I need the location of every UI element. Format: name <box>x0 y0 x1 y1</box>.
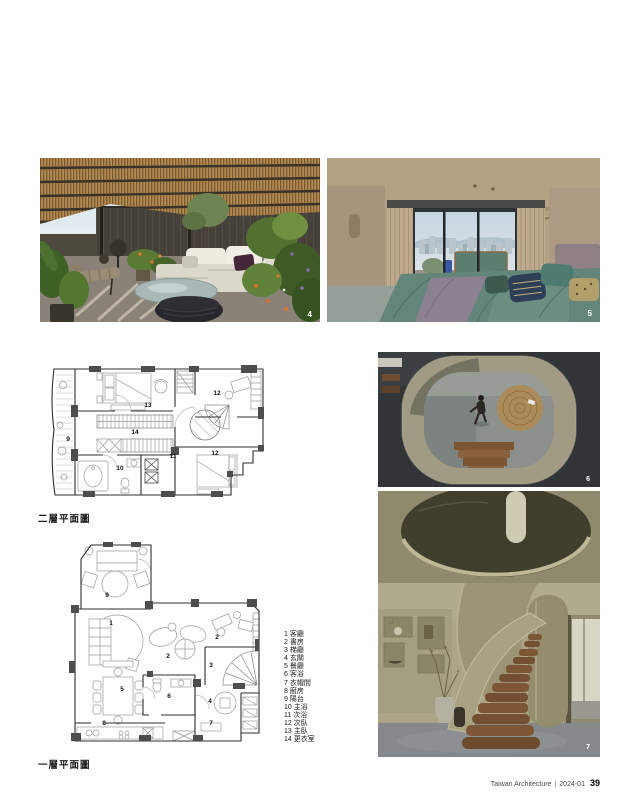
balcony-deck <box>56 375 73 489</box>
floor-plan-1f: 9 1 2 2 3 5 6 4 8 7 <box>45 535 270 755</box>
page-footer: Taiwan Architecture|2024-0139 <box>491 778 600 788</box>
svg-text:9: 9 <box>105 592 109 599</box>
wall-niche <box>349 214 360 238</box>
legend-item: 9 陽台 <box>284 696 315 704</box>
legend-item: 11 次浴 <box>284 712 315 720</box>
svg-text:10: 10 <box>116 465 124 472</box>
magazine-page: 4 <box>0 0 638 808</box>
photo-void: 6 <box>378 352 600 487</box>
balcony-shrub <box>422 258 444 274</box>
svg-text:11: 11 <box>170 453 177 460</box>
window-header <box>387 200 545 209</box>
photo-stair-hall: 7 <box>378 491 600 757</box>
upper-slab-and-void <box>378 491 600 583</box>
svg-text:8: 8 <box>102 720 106 727</box>
floor-plan-2f: 13 12 14 9 10 11 12 <box>45 355 267 505</box>
plan-2f-caption: 二層平面圖 <box>38 511 91 525</box>
room-legend: 1 客廳 2 書房 3 梯廳 4 玄關 5 餐廳 6 客浴 7 衣帽間 8 廚房… <box>284 631 315 744</box>
photo-number: 6 <box>586 476 590 483</box>
legend-item: 8 廚房 <box>284 688 315 696</box>
journal-name: Taiwan Architecture <box>491 781 552 788</box>
svg-text:12: 12 <box>211 450 219 457</box>
legend-item: 6 客浴 <box>284 671 315 679</box>
svg-text:2: 2 <box>166 653 170 660</box>
photo-terrace: 4 <box>40 158 320 322</box>
photo-bedroom: 5 <box>327 158 600 322</box>
legend-item: 14 更衣室 <box>284 736 315 744</box>
legend-item: 12 次臥 <box>284 720 315 728</box>
svg-text:5: 5 <box>120 686 124 693</box>
svg-text:9: 9 <box>66 436 70 443</box>
photo-number: 4 <box>308 310 313 319</box>
svg-text:1: 1 <box>109 620 113 627</box>
furniture <box>77 547 259 741</box>
legend-item: 2 書房 <box>284 639 315 647</box>
shafts <box>145 459 158 483</box>
photo-number: 7 <box>586 744 590 751</box>
svg-text:14: 14 <box>131 429 139 436</box>
svg-text:6: 6 <box>167 693 171 700</box>
issue-date: 2024-01 <box>559 781 585 788</box>
spiral-stair <box>205 647 259 685</box>
svg-text:2: 2 <box>215 634 219 641</box>
footer-separator: | <box>554 781 556 788</box>
svg-text:3: 3 <box>209 662 213 669</box>
woven-pouf <box>155 296 223 322</box>
photo-number: 5 <box>588 309 593 318</box>
legend-item: 7 衣帽間 <box>284 680 315 688</box>
doorway-right <box>564 615 600 723</box>
svg-text:7: 7 <box>209 720 213 727</box>
lower-floor-scene <box>424 372 554 474</box>
legend-item: 10 主浴 <box>284 704 315 712</box>
round-rug <box>497 385 543 431</box>
svg-text:12: 12 <box>213 390 221 397</box>
page-number: 39 <box>590 778 600 788</box>
legend-item: 1 客廳 <box>284 631 315 639</box>
plan-1f-caption: 一層平面圖 <box>38 757 91 771</box>
svg-text:13: 13 <box>144 402 152 409</box>
legend-item: 13 主臥 <box>284 728 315 736</box>
svg-text:4: 4 <box>208 698 212 705</box>
